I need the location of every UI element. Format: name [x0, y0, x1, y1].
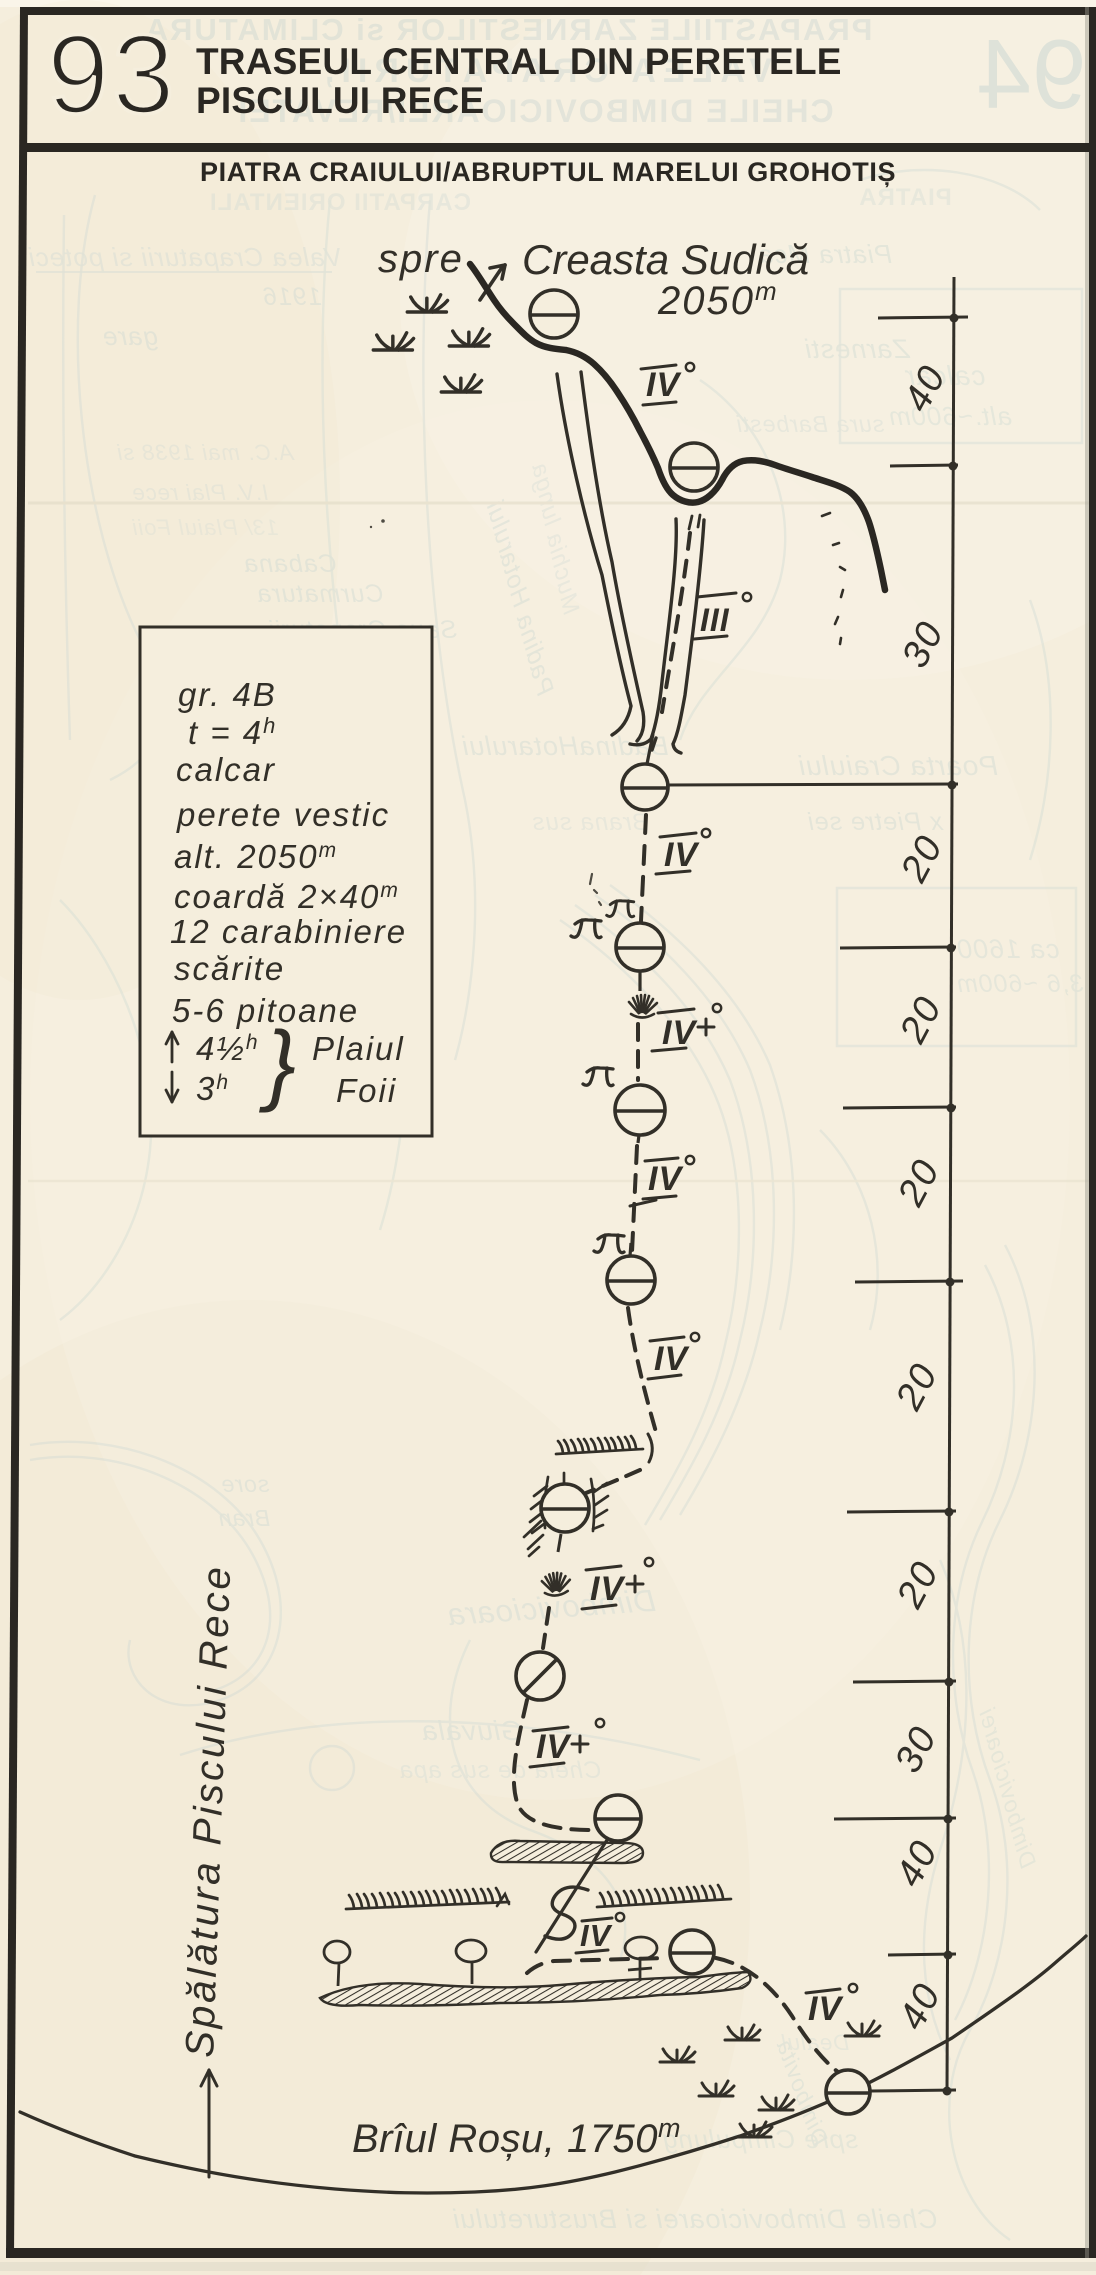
svg-text:scărite: scărite	[174, 950, 285, 987]
svg-text:spre: spre	[378, 237, 464, 281]
svg-text:sore: sore	[221, 1471, 270, 1497]
svg-text:IV: IV	[590, 1570, 626, 1608]
svg-text:Giuvala: Giuvala	[421, 1715, 523, 1746]
svg-text:TRASEUL CENTRAL DIN PERETELE: TRASEUL CENTRAL DIN PERETELE	[196, 41, 842, 82]
svg-text:alt. 2050m: alt. 2050m	[174, 838, 338, 875]
svg-text:IV: IV	[536, 1728, 572, 1766]
svg-text:x Pietre sei: x Pietre sei	[807, 808, 944, 836]
svg-text:Cabana: Cabana	[243, 550, 337, 578]
svg-text:IV: IV	[662, 1014, 698, 1052]
svg-text:gare: gare	[102, 321, 158, 351]
svg-text:perete vestic: perete vestic	[176, 796, 390, 833]
svg-text:Valea Crapaturii si poteci: Valea Crapaturii si poteci	[28, 242, 342, 272]
svg-text:calcar: calcar	[176, 751, 276, 788]
svg-text:Cheile Dimbovicioarei si Brust: Cheile Dimbovicioarei si Brusturetului	[452, 2204, 937, 2234]
svg-text:IV: IV	[646, 366, 682, 404]
svg-text:ca 1600: ca 1600	[956, 934, 1059, 964]
svg-text:IV: IV	[808, 1990, 844, 2028]
svg-text:PIATRA: PIATRA	[858, 184, 952, 211]
svg-text:3,6 ~600m: 3,6 ~600m	[956, 970, 1084, 998]
svg-text:sura Barbesti: sura Barbesti	[736, 411, 885, 437]
svg-text:A.C. mai 1938 si: A.C. mai 1938 si	[116, 440, 296, 465]
svg-text:93: 93	[47, 12, 178, 137]
svg-text:coardă 2×40m: coardă 2×40m	[174, 878, 400, 915]
svg-text:IV: IV	[654, 1340, 690, 1378]
svg-text:PIATRA CRAIULUI/ABRUPTUL MAREL: PIATRA CRAIULUI/ABRUPTUL MARELUI GROHOTI…	[200, 157, 896, 187]
svg-text:IV: IV	[580, 1918, 613, 1953]
svg-text:Foii: Foii	[336, 1072, 397, 1109]
svg-text:I.V. Plai rece: I.V. Plai rece	[131, 480, 268, 505]
svg-text:1916: 1916	[262, 283, 322, 311]
svg-text:gr. 4B: gr. 4B	[178, 676, 277, 713]
svg-text:12 carabiniere: 12 carabiniere	[170, 913, 407, 950]
svg-text:Poarta Craiului: Poarta Craiului	[798, 750, 998, 781]
svg-text:IV: IV	[648, 1160, 684, 1198]
svg-text:Zarnesti: Zarnesti	[804, 334, 911, 364]
svg-text:CARPATII ORIENTALI: CARPATII ORIENTALI	[209, 189, 471, 216]
svg-text:Curmatura: Curmatura	[256, 580, 383, 608]
svg-text:Brana sus: Brana sus	[531, 809, 648, 836]
svg-text:PISCULUI RECE: PISCULUI RECE	[196, 80, 484, 121]
svg-text:Brîul Roșu, 1750m: Brîul Roșu, 1750m	[352, 2113, 681, 2161]
svg-text:IV: IV	[664, 836, 700, 874]
svg-text:Cheia de sus apa: Cheia de sus apa	[399, 1757, 602, 1784]
svg-text:III: III	[700, 602, 730, 638]
svg-text:Plaiul: Plaiul	[312, 1030, 405, 1067]
svg-text:94: 94	[975, 19, 1086, 129]
svg-text:13/ Plaiul Foii: 13/ Plaiul Foii	[131, 515, 278, 540]
